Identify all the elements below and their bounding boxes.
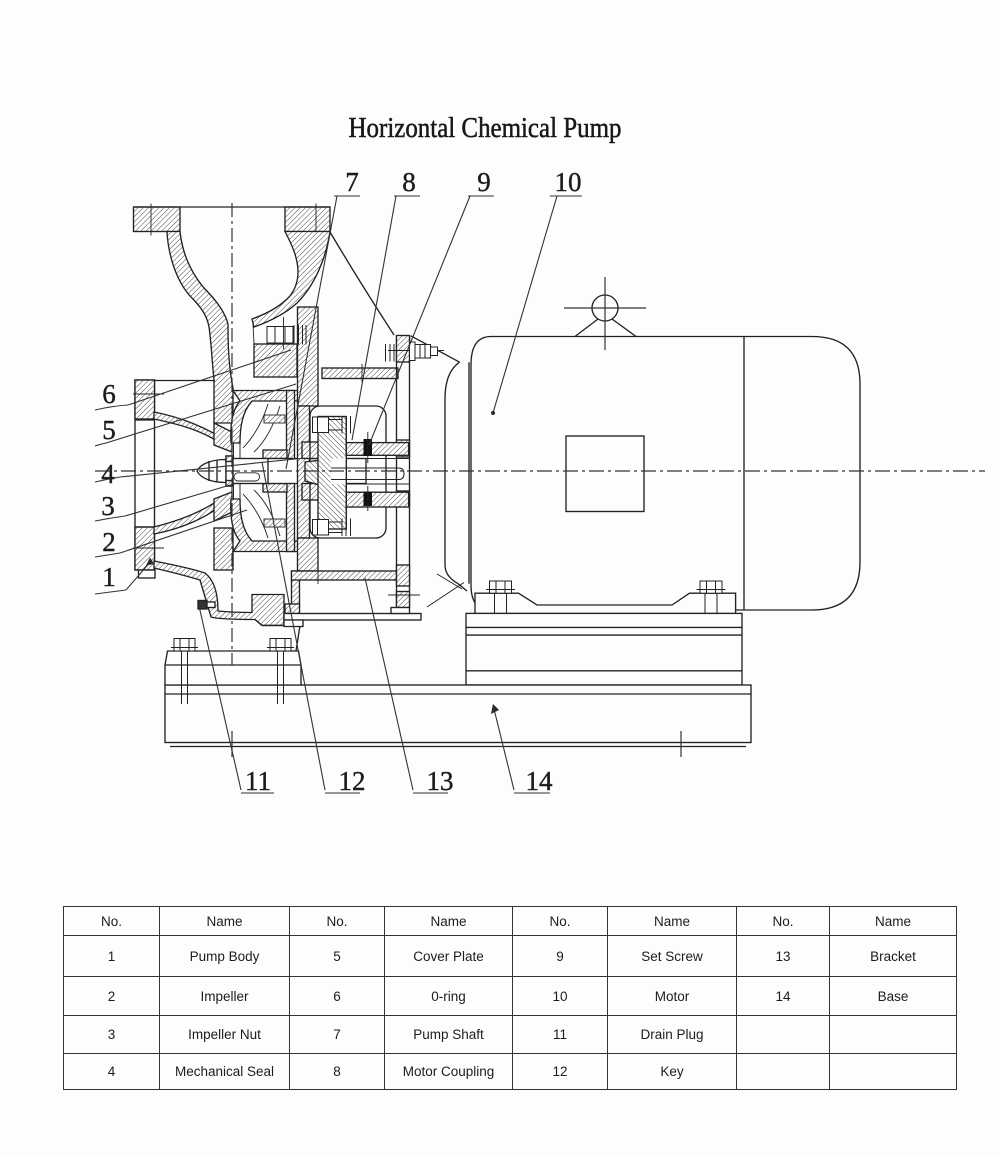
svg-text:13: 13	[427, 766, 454, 796]
svg-text:3: 3	[101, 491, 115, 521]
svg-text:8: 8	[402, 167, 416, 197]
svg-text:6: 6	[102, 379, 116, 409]
svg-text:7: 7	[345, 167, 359, 197]
svg-text:12: 12	[339, 766, 366, 796]
svg-text:1: 1	[102, 562, 116, 592]
svg-text:11: 11	[245, 766, 271, 796]
svg-text:14: 14	[526, 766, 554, 796]
svg-text:2: 2	[102, 527, 116, 557]
svg-text:4: 4	[101, 459, 115, 489]
svg-text:10: 10	[555, 167, 582, 197]
svg-text:9: 9	[477, 167, 491, 197]
svg-text:5: 5	[102, 415, 116, 445]
